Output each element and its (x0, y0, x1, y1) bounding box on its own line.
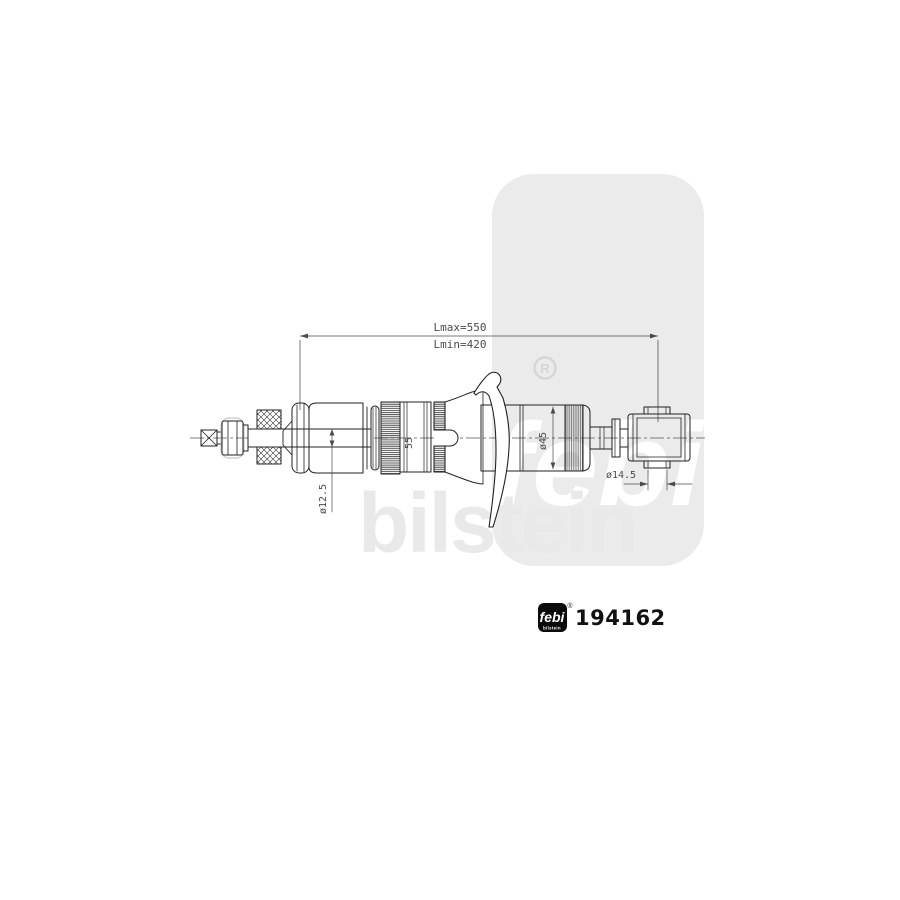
rod-diameter-label: ø12.5 (318, 484, 329, 514)
part-number: 194162 (575, 606, 666, 630)
seat-width-label: 55 (404, 437, 415, 449)
technical-drawing-svg: febi R bilstein Lmax=550 Lmin=420 (0, 0, 900, 900)
thread-band (565, 405, 583, 471)
febi-logo-subtext: bilstein (543, 626, 561, 631)
bushing-diameter-label: ø14.5 (606, 470, 636, 481)
lmin-label: Lmin=420 (434, 338, 487, 351)
lmax-label: Lmax=550 (434, 321, 487, 334)
part-label: febi bilstein ® 194162 (538, 602, 666, 632)
screenshot-canvas: febi R bilstein Lmax=550 Lmin=420 (0, 0, 900, 900)
watermark-registered-letter: R (540, 361, 550, 376)
rod-diameter-dimension (330, 429, 335, 512)
febi-logo-text: febi (540, 609, 566, 625)
watermark-febi-bilstein: febi R bilstein (358, 174, 705, 570)
registered-trademark-icon: ® (567, 602, 573, 610)
collar-bands (434, 402, 458, 472)
dim-arrow-left (300, 334, 308, 339)
knurled-band (381, 402, 400, 474)
body-diameter-label: ø45 (538, 432, 549, 450)
